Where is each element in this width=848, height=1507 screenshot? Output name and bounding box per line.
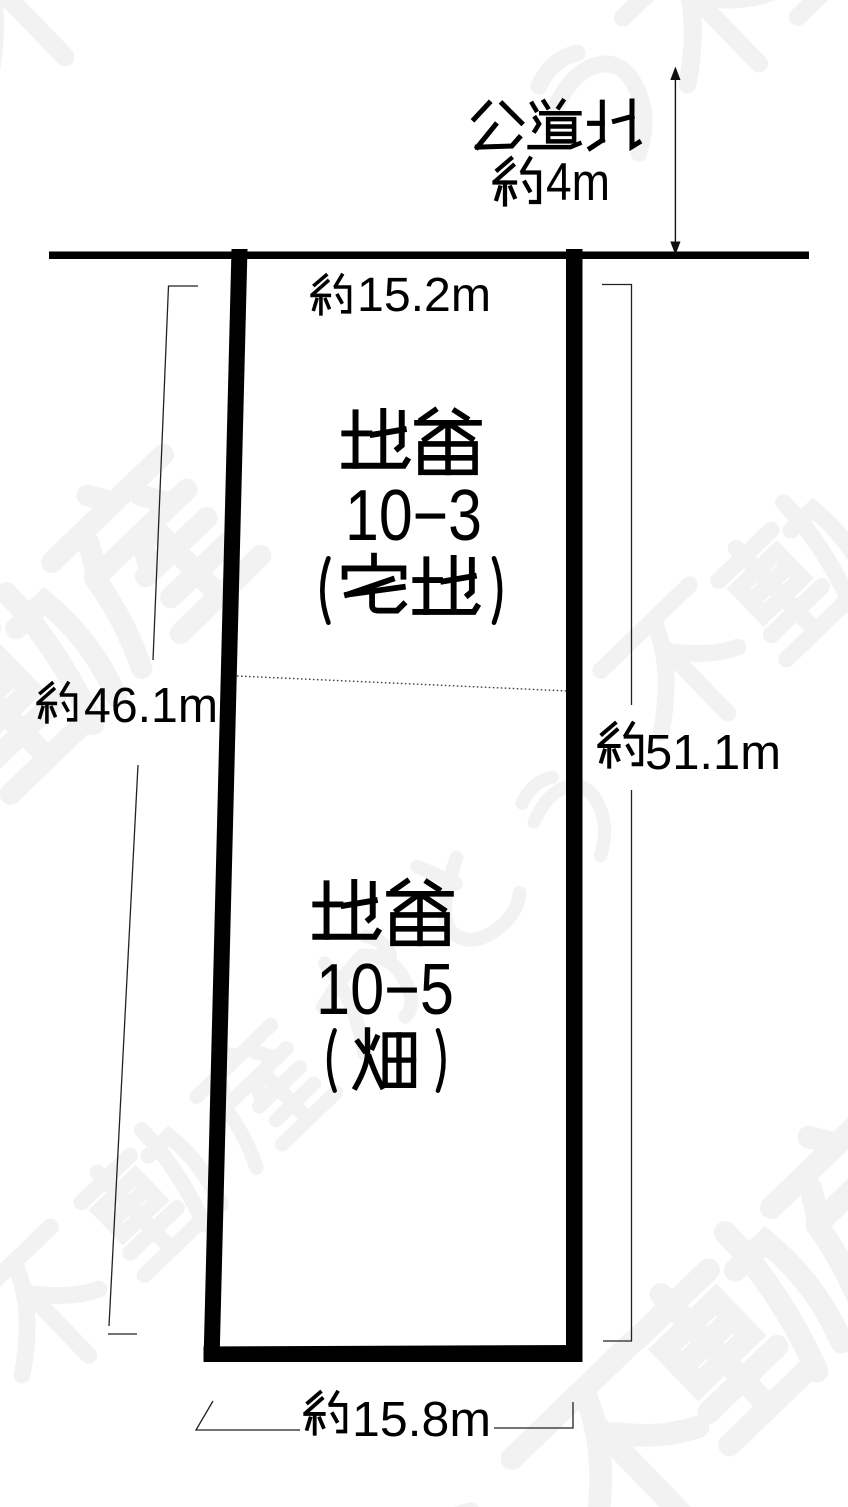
svg-text:46.1m: 46.1m xyxy=(84,679,218,733)
svg-text:15.8m: 15.8m xyxy=(352,1393,491,1447)
svg-text:15.2m: 15.2m xyxy=(357,269,491,322)
svg-text:10−3: 10−3 xyxy=(345,476,482,556)
svg-text:51.1m: 51.1m xyxy=(645,726,781,780)
svg-text:4m: 4m xyxy=(546,153,610,212)
svg-text:10−5: 10−5 xyxy=(316,950,454,1030)
